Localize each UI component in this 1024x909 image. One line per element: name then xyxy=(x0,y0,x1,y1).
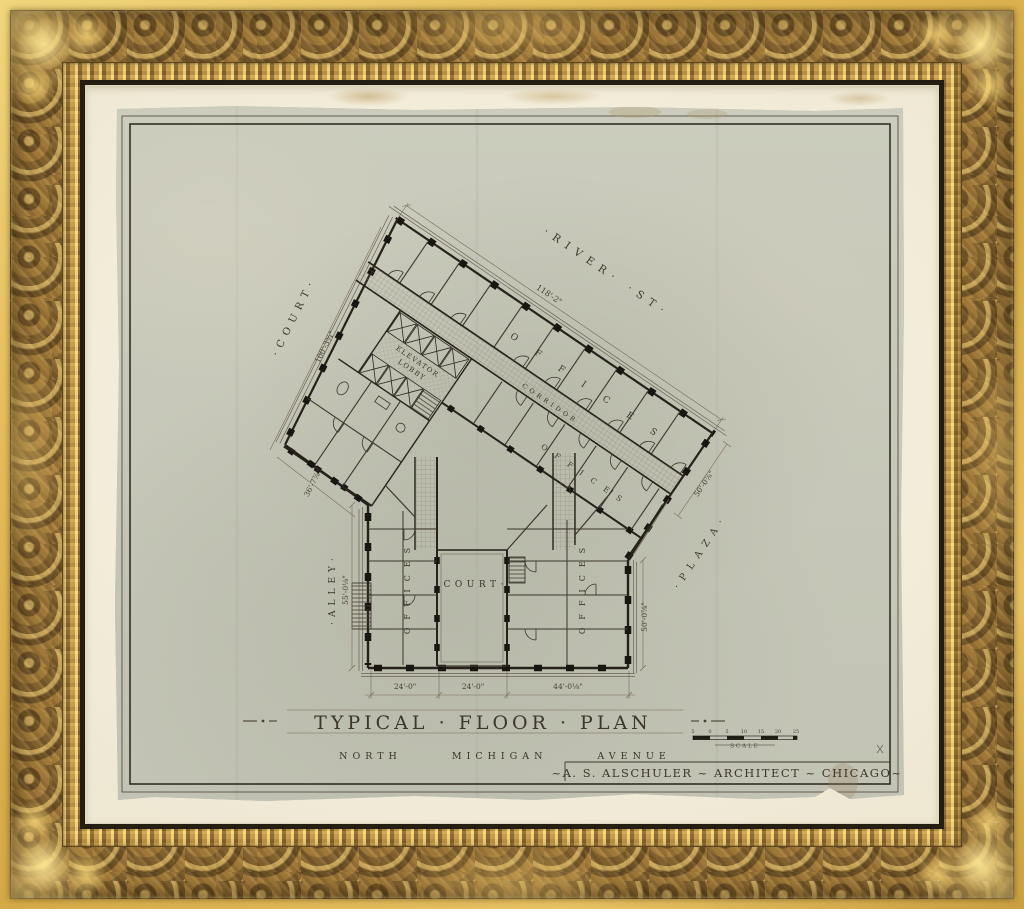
offices-label-right-wing: OFFICES xyxy=(578,540,587,634)
check-mark xyxy=(877,745,883,753)
svg-text:5: 5 xyxy=(725,729,728,735)
label-court-center: ·COURT· xyxy=(436,580,508,590)
sheet-border xyxy=(122,116,898,792)
dim-plaza-se: 50'-0⅞" xyxy=(640,557,649,671)
dim-plaza-ne: 50'-0⅞" xyxy=(674,441,731,519)
framed-floor-plan-photo: OFFICES OFFICES CORRIDOR ELEVATOR LOBBY … xyxy=(0,0,1024,909)
svg-text:50'-0⅞": 50'-0⅞" xyxy=(640,602,649,632)
stair xyxy=(509,557,525,583)
offices-label-left-wing: OFFICES xyxy=(403,540,412,634)
label-plaza: ·PLAZA· xyxy=(672,512,730,591)
tape-stain xyxy=(827,91,891,106)
scale-bar: 5 0 5 10 15 20 25 SCALE xyxy=(691,729,799,750)
drawing-sheet: OFFICES OFFICES CORRIDOR ELEVATOR LOBBY … xyxy=(115,105,905,802)
svg-text:25: 25 xyxy=(793,729,799,735)
mat-board: OFFICES OFFICES CORRIDOR ELEVATOR LOBBY … xyxy=(85,85,939,824)
svg-text:50'-0⅞": 50'-0⅞" xyxy=(692,469,716,499)
scale-label: SCALE xyxy=(730,744,760,750)
drawing-title: TYPICAL · FLOOR · PLAN xyxy=(314,712,652,734)
label-river-st: ·RIVER· ·ST· xyxy=(541,226,672,320)
right-wing-partitions xyxy=(507,520,628,665)
title-ornament-right xyxy=(691,720,725,723)
label-court-nw: ·COURT· xyxy=(271,276,319,359)
architect-signature: ~A. S. ALSCHULER ~ ARCHITECT ~ CHICAGO~ xyxy=(551,766,902,780)
svg-text:10: 10 xyxy=(741,729,747,735)
svg-text:44'-0⅛": 44'-0⅛" xyxy=(553,682,583,691)
label-alley: ·ALLEY· xyxy=(328,553,338,625)
tape-stain xyxy=(503,88,603,105)
tape-stain xyxy=(328,87,408,106)
svg-text:20: 20 xyxy=(775,729,781,735)
lower-block xyxy=(285,445,669,677)
svg-text:24'-0": 24'-0" xyxy=(394,682,416,691)
drawing-subtitle: NORTH MICHIGAN AVENUE xyxy=(339,751,671,762)
title-block: TYPICAL · FLOOR · PLAN NORTH MICHIGAN AV… xyxy=(243,710,903,781)
svg-text:55'-0⅛": 55'-0⅛" xyxy=(341,575,350,605)
svg-text:24'-0": 24'-0" xyxy=(462,682,484,691)
svg-text:15: 15 xyxy=(758,729,764,735)
title-ornament-left xyxy=(243,720,277,723)
elevator-core xyxy=(338,297,471,421)
svg-text:0: 0 xyxy=(708,729,711,735)
dim-bottom-bays: 24'-0" 24'-0" 44'-0⅛" xyxy=(365,671,635,699)
stair xyxy=(352,583,371,629)
svg-text:118'-2": 118'-2" xyxy=(535,283,564,307)
svg-text:36'-7⅞": 36'-7⅞" xyxy=(302,468,323,499)
floor-plan-drawing: OFFICES OFFICES CORRIDOR ELEVATOR LOBBY … xyxy=(115,105,905,802)
svg-text:5: 5 xyxy=(691,729,694,735)
